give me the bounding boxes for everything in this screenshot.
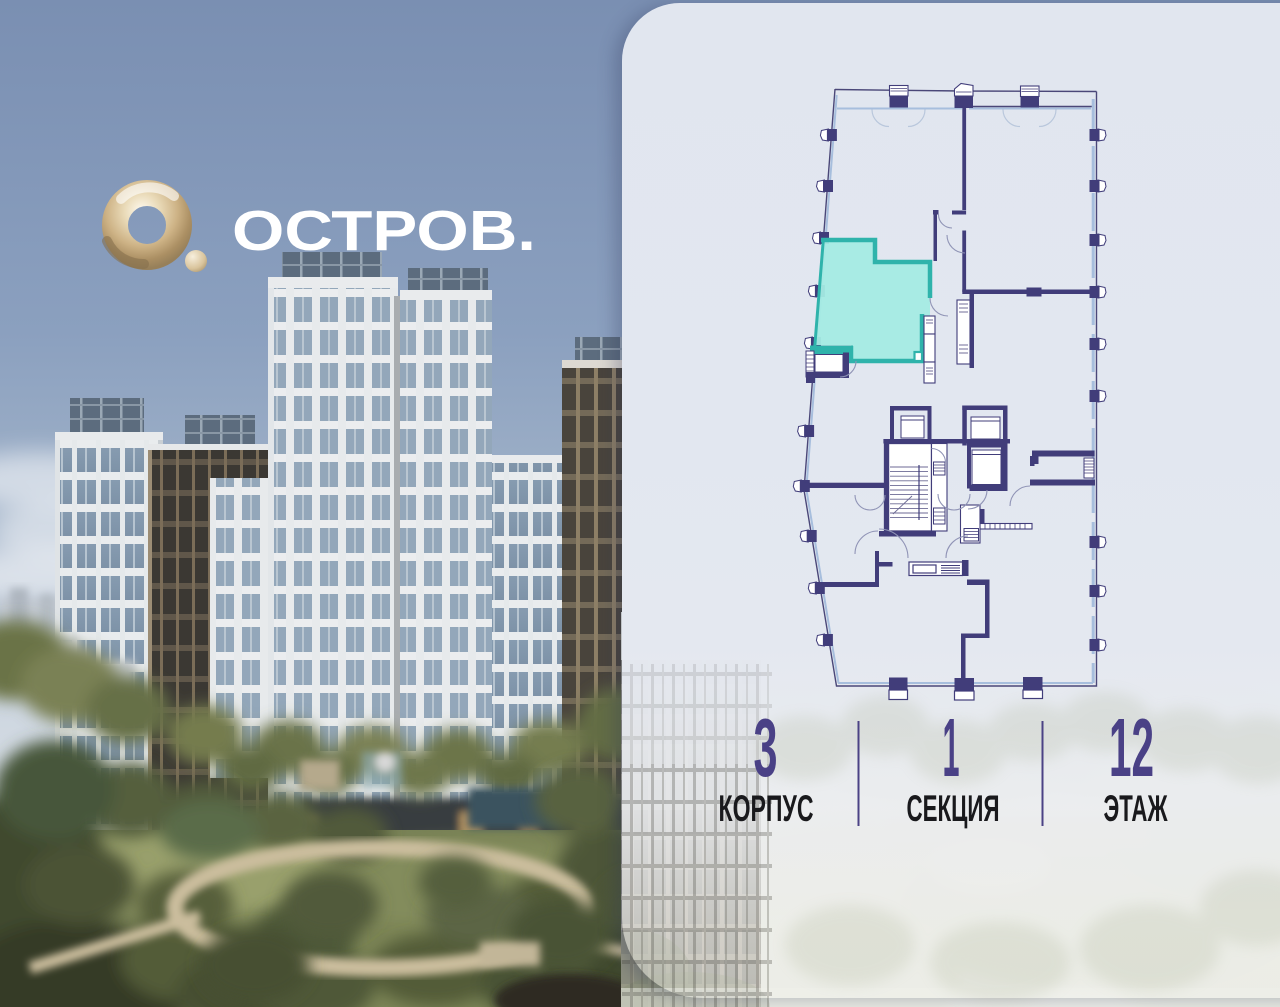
svg-text:ЭТАЖ: ЭТАЖ (1104, 788, 1168, 829)
svg-text:12: 12 (1109, 701, 1154, 794)
svg-text:КОРПУС: КОРПУС (719, 788, 814, 829)
svg-text:СЕКЦИЯ: СЕКЦИЯ (907, 788, 1000, 829)
svg-text:1: 1 (943, 701, 960, 794)
svg-text:3: 3 (754, 701, 778, 794)
svg-text:ОСТРОВ.: ОСТРОВ. (232, 199, 536, 263)
